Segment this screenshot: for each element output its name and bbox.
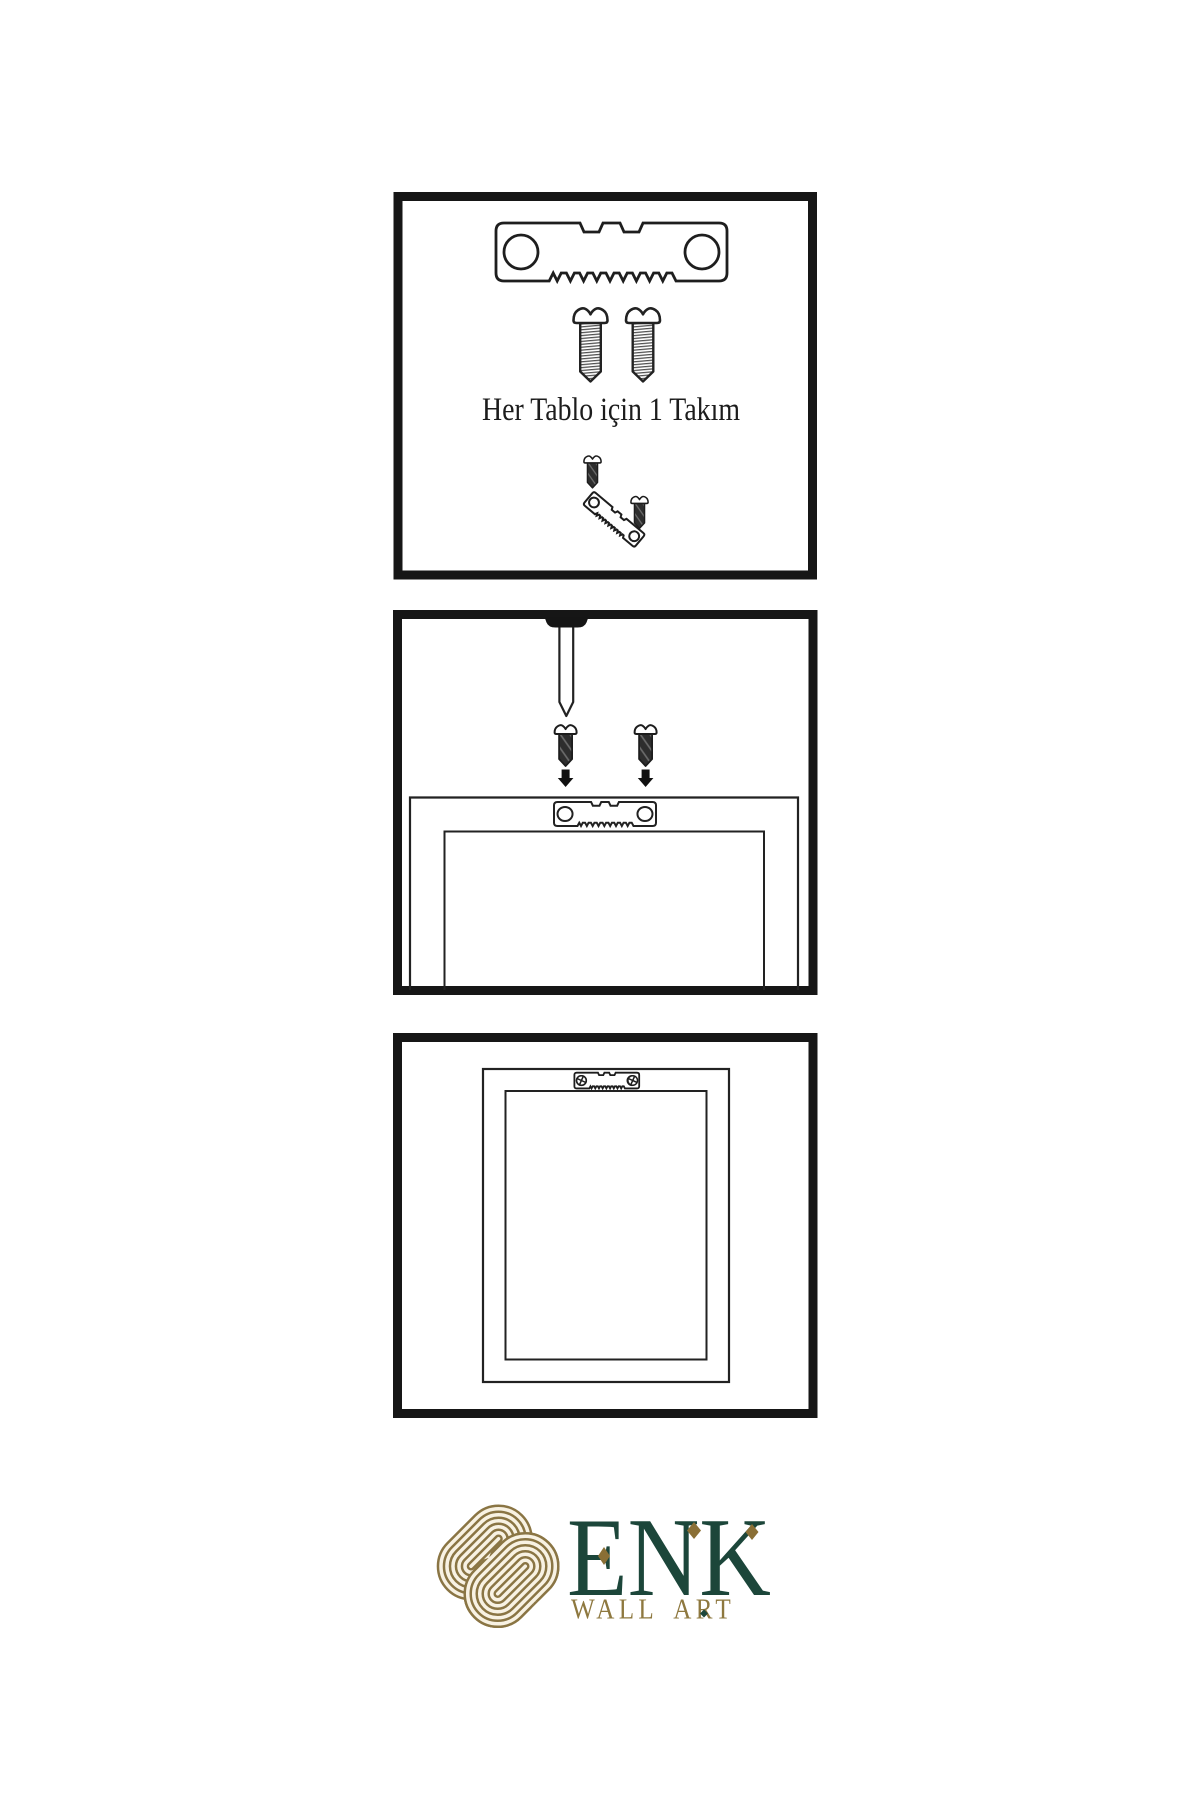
svg-text:Her Tablo için 1 Takım: Her Tablo için 1 Takım bbox=[482, 392, 740, 428]
svg-text:WALL ART: WALL ART bbox=[571, 1594, 735, 1626]
